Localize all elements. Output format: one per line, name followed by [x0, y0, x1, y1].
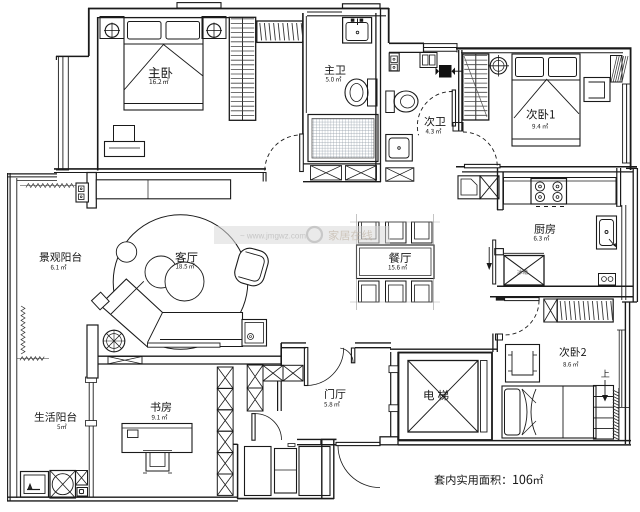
- svg-text:~ www.jmgwz.com: ~ www.jmgwz.com: [240, 232, 306, 241]
